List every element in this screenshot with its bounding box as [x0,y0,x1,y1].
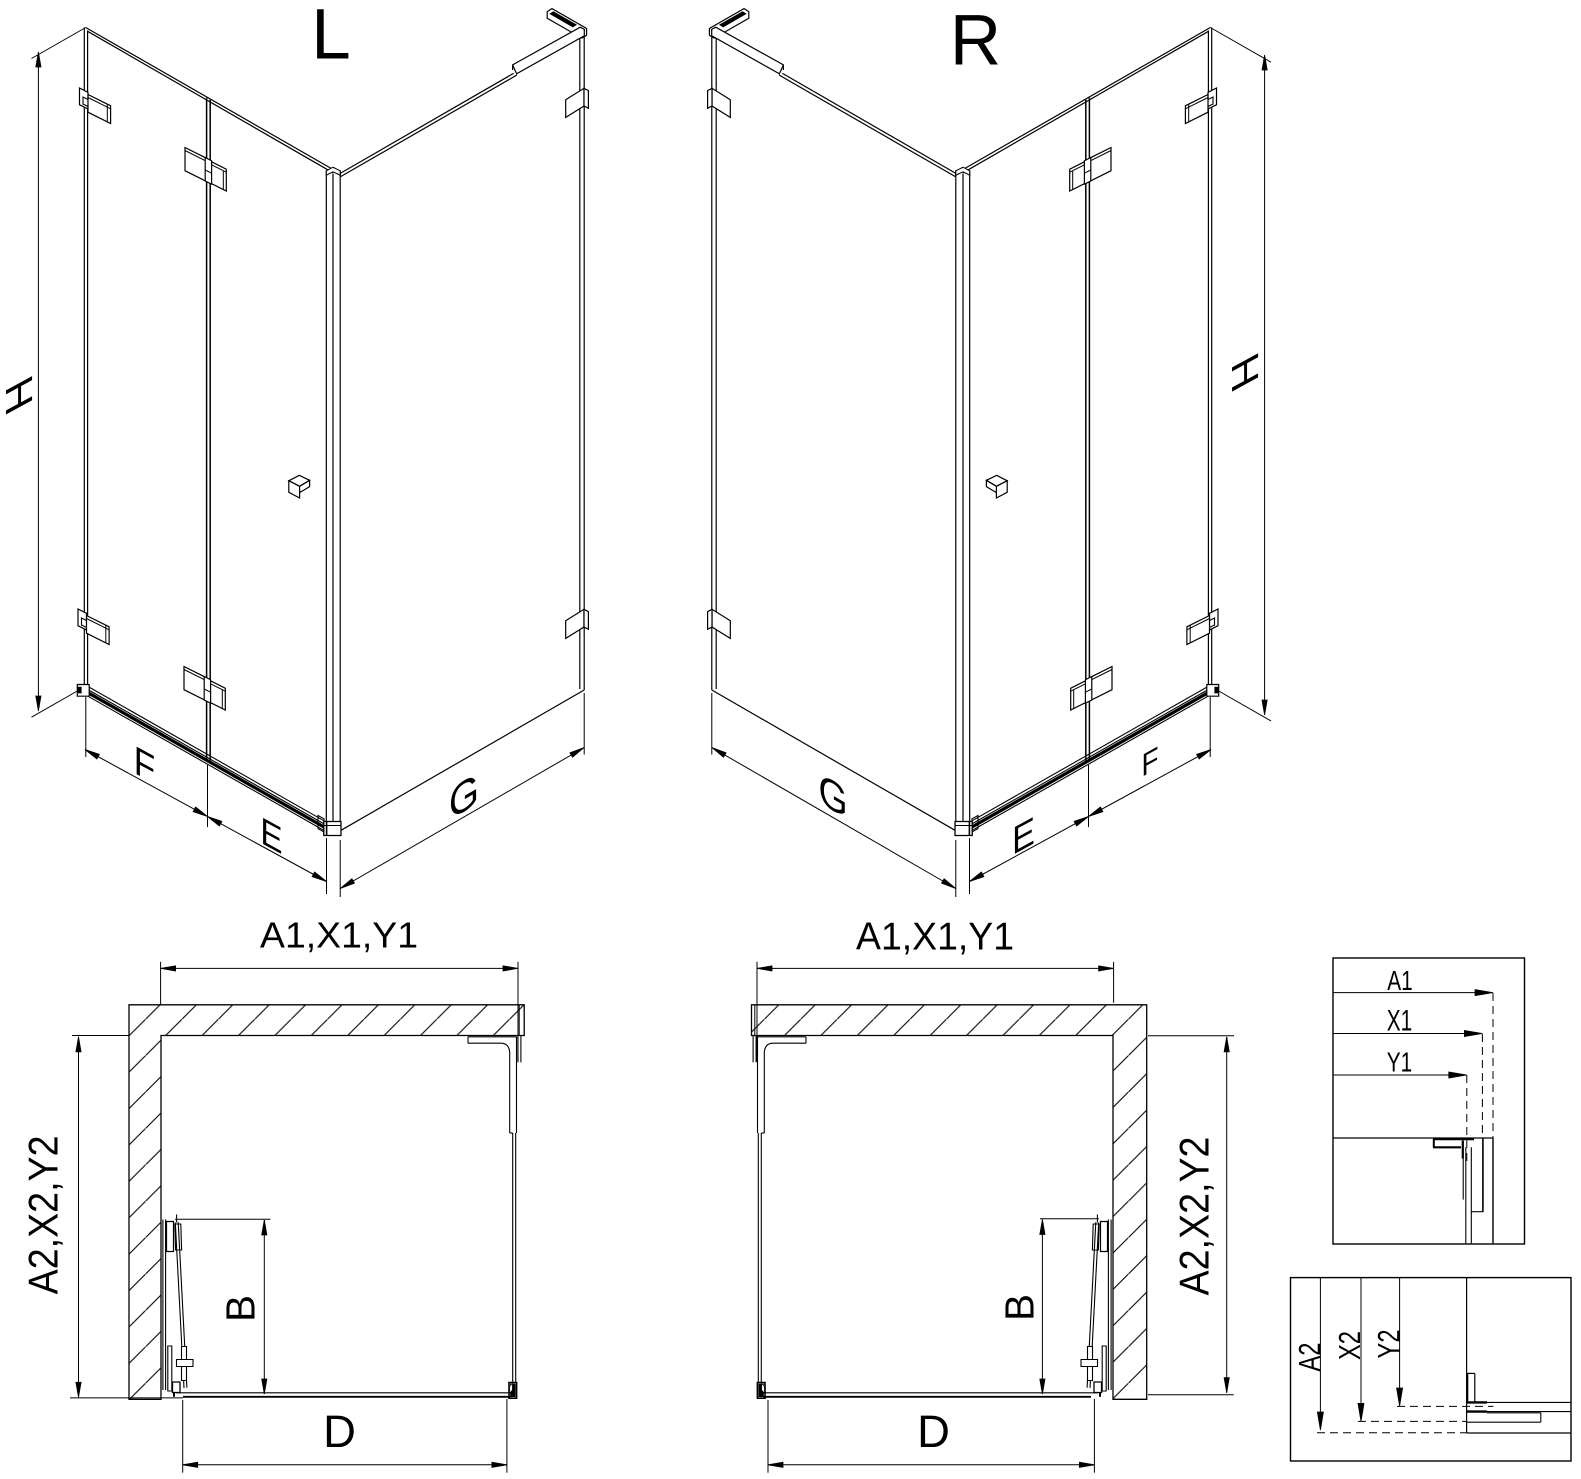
svg-text:A2: A2 [1292,1343,1327,1372]
svg-text:R: R [950,2,1001,81]
svg-text:Y2: Y2 [1372,1330,1407,1359]
svg-text:B: B [218,1295,264,1322]
svg-text:B: B [997,1294,1043,1321]
svg-text:A2,X2,Y2: A2,X2,Y2 [20,1135,67,1294]
svg-text:Y1: Y1 [1387,1047,1413,1078]
svg-text:X1: X1 [1387,1005,1413,1038]
svg-text:A1,X1,Y1: A1,X1,Y1 [260,914,418,955]
svg-text:D: D [323,1406,356,1457]
svg-text:A2,X2,Y2: A2,X2,Y2 [1171,1137,1218,1296]
svg-text:A1: A1 [1387,965,1413,996]
svg-text:L: L [311,0,351,74]
svg-text:X2: X2 [1332,1331,1367,1360]
svg-text:A1,X1,Y1: A1,X1,Y1 [856,916,1014,959]
svg-text:D: D [917,1406,950,1457]
